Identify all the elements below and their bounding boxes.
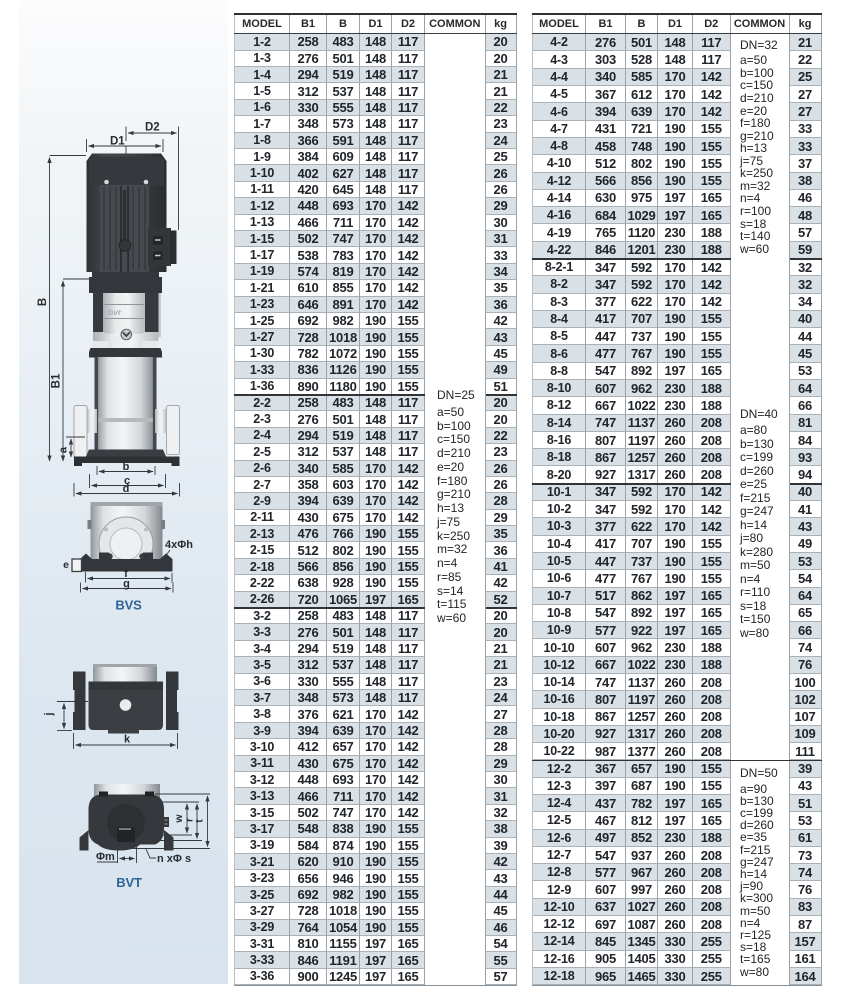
svg-text:a: a	[58, 446, 70, 453]
svg-text:d: d	[123, 483, 130, 495]
svg-text:D1: D1	[110, 136, 125, 148]
svg-text:b: b	[123, 461, 130, 473]
svg-text:e: e	[63, 559, 69, 571]
svg-text:n xΦ s: n xΦ s	[157, 853, 191, 865]
svg-text:k: k	[124, 734, 131, 746]
svg-text:BVS: BVS	[115, 597, 142, 612]
svg-text:t: t	[194, 819, 206, 823]
svg-text:bvr: bvr	[108, 307, 122, 317]
svg-text:B1: B1	[51, 373, 63, 388]
svg-text:B: B	[37, 298, 49, 306]
svg-text:g: g	[123, 578, 130, 590]
svg-text:4xΦh: 4xΦh	[165, 539, 193, 551]
svg-text:j: j	[43, 712, 55, 716]
svg-text:D2: D2	[145, 122, 160, 134]
svg-text:BVT: BVT	[116, 875, 142, 890]
svg-text:Φm: Φm	[96, 851, 115, 863]
